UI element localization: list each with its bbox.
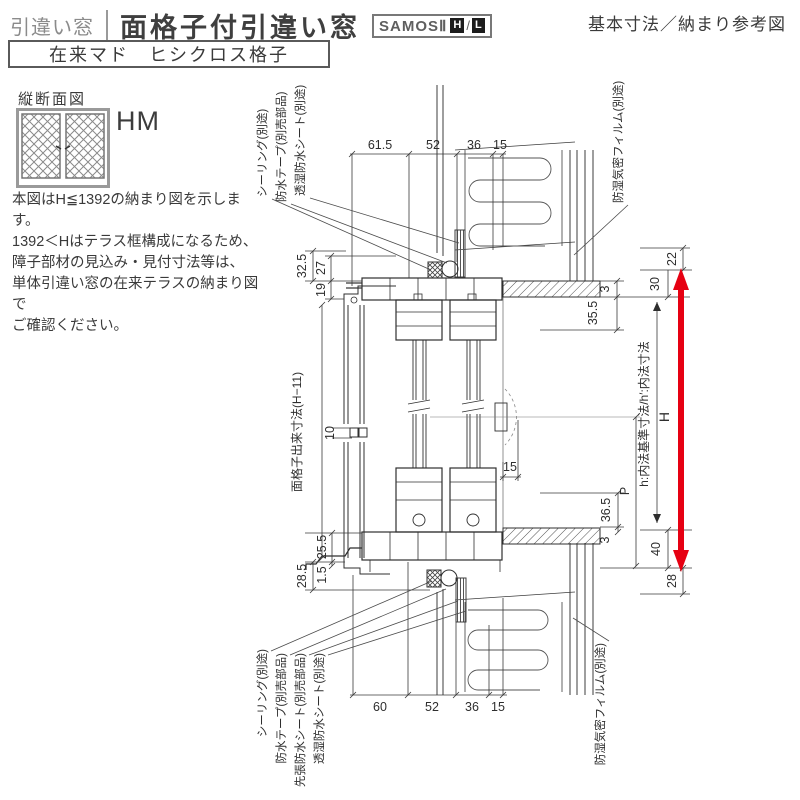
dim-left-sill-3: 28.5 [295, 564, 309, 588]
dim-bottom-3: 36 [465, 700, 479, 714]
dim-top-2: 52 [426, 138, 440, 152]
trim-and-seals [427, 261, 600, 587]
dim-handle-P: P [618, 487, 632, 495]
dim-left-sill-1: 25.5 [315, 535, 329, 559]
backer-rod-sill [441, 570, 457, 586]
dim-right-head-3: 3 [598, 285, 612, 292]
interior-trim-head [503, 281, 600, 297]
wall-structure [437, 85, 593, 695]
drawing-sheet: 引違い窓 面格子付引違い窓 SAMOSⅡ H / L 基本寸法／納まり参考図 在… [0, 0, 800, 800]
sealant-sill [427, 570, 441, 587]
dim-bottom-4: 15 [491, 700, 505, 714]
callout-breathable-sheet-top: 透湿防水シート(別途) [293, 85, 307, 196]
dim-right-sill-28: 28 [665, 574, 679, 588]
dim-top-1: 61.5 [368, 138, 392, 152]
callout-vapor-film-bottom: 防湿気密フィルム(別途) [593, 643, 607, 765]
dim-bottom-2: 52 [425, 700, 439, 714]
dim-right-sill-40: 40 [649, 542, 663, 556]
callout-sealing-top: シーリング(別途) [255, 109, 269, 197]
callout-waterproof-tape-bottom: 防水テープ(別売部品) [274, 653, 288, 764]
inner-height-label: h:内法基準寸法/h′:内法寸法 [636, 341, 651, 487]
height-arrow-head-top [673, 268, 689, 290]
dim-left-head-2: 27 [314, 261, 328, 275]
callout-sealing-bottom: シーリング(別途) [255, 649, 269, 737]
face-lattice-section [344, 286, 396, 574]
interior-trim-sill [503, 528, 600, 544]
callout-breathable-sheet-bottom: 透湿防水シート(別途) [312, 653, 326, 764]
dim-right-head-30: 30 [648, 277, 662, 291]
dim-left-head-1: 32.5 [295, 254, 309, 278]
dimension-lines [305, 151, 692, 698]
dim-bottom-1: 60 [373, 700, 387, 714]
dim-top-4: 15 [493, 138, 507, 152]
dim-left-sill-2: 1.5 [315, 566, 329, 583]
callout-pre-applied-sheet-bottom: 先張防水シート(別売部品) [293, 653, 307, 787]
dim-right-head-22: 22 [665, 252, 679, 266]
dim-top-3: 36 [467, 138, 481, 152]
dim-right-sill-3: 3 [598, 536, 612, 543]
dim-clearance: 15 [503, 460, 517, 474]
dim-left-head-3: 19 [314, 283, 328, 297]
height-arrow [673, 268, 689, 572]
height-arrow-head-bottom [673, 550, 689, 572]
callout-vapor-film-top: 防湿気密フィルム(別途) [611, 81, 625, 203]
dim-right-head-35-5: 35.5 [586, 301, 600, 325]
dim-lattice-pitch: 10 [323, 426, 337, 440]
callout-waterproof-tape-top: 防水テープ(別売部品) [274, 91, 288, 202]
dim-right-sill-36-5: 36.5 [599, 498, 613, 522]
lattice-height-label: 面格子出来寸法(H−11) [289, 372, 304, 492]
dim-height-H: H [656, 412, 672, 422]
section-drawing: 61.5 52 36 15 60 52 36 15 32.5 27 19 25.… [0, 0, 800, 800]
